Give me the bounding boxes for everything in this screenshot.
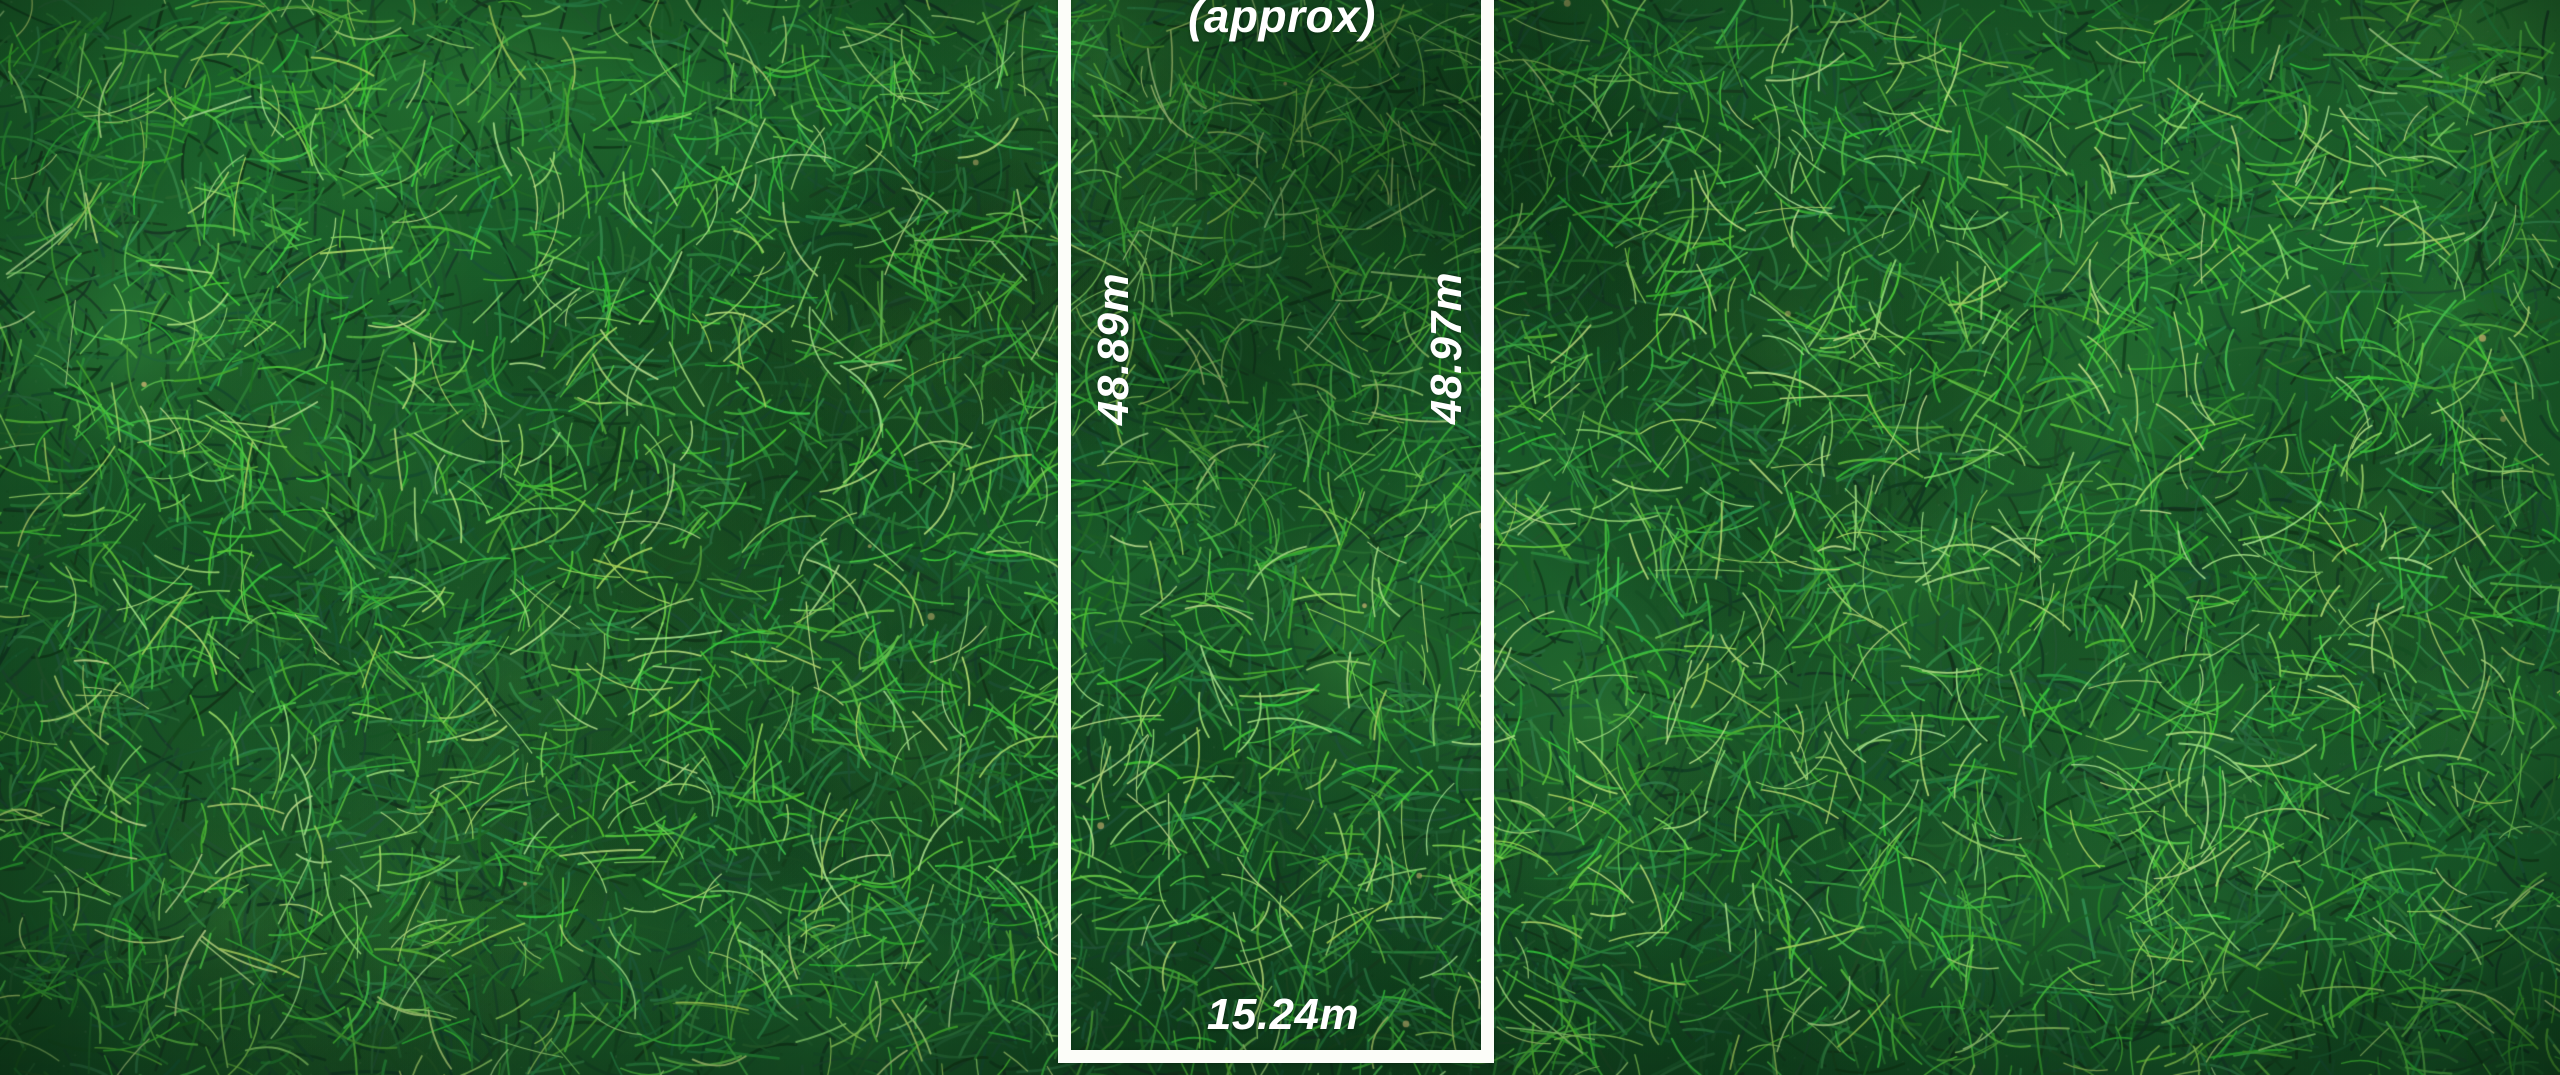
plot-boundary-rectangle: [1058, 0, 1494, 1063]
plot-dimension-frontage: 15.24m: [1207, 993, 1359, 1037]
plot-dimension-left-side: 48.89m: [1092, 273, 1136, 425]
plot-dimension-right-side: 48.97m: [1425, 272, 1469, 424]
land-listing-photo: (approx) 48.89m 48.97m 15.24m: [0, 0, 2560, 1075]
plot-approx-note: (approx): [1188, 0, 1376, 39]
